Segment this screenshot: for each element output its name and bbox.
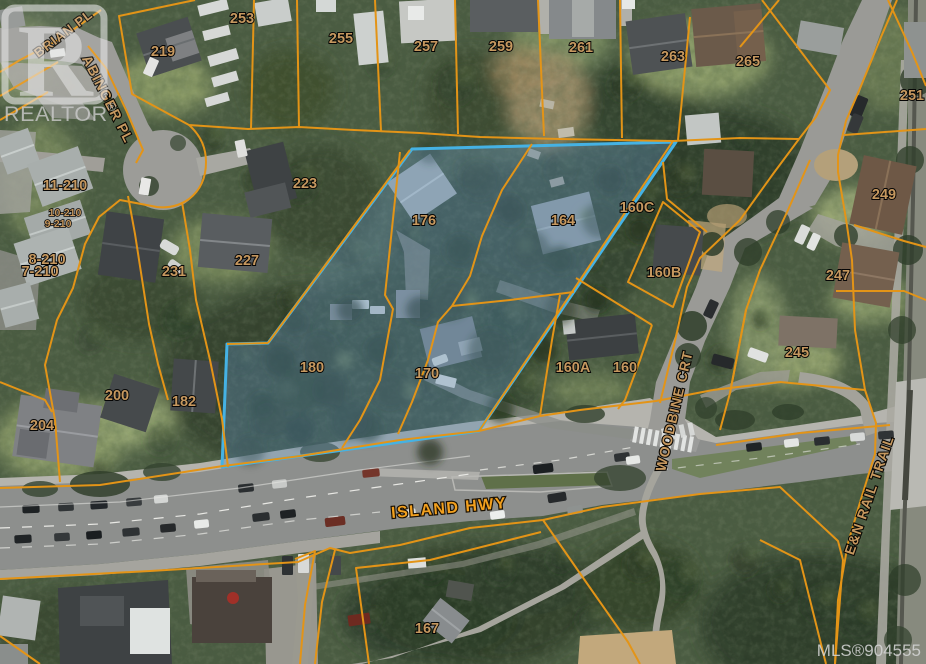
svg-text:176: 176 [412,213,436,229]
svg-text:REALTOR®: REALTOR® [4,102,116,126]
svg-text:11-210: 11-210 [43,178,87,194]
svg-text:200: 200 [105,388,129,404]
svg-text:7-210: 7-210 [21,264,58,280]
svg-text:180: 180 [300,360,324,376]
svg-text:227: 227 [235,253,259,269]
svg-text:160: 160 [613,360,637,376]
svg-text:255: 255 [329,31,353,47]
svg-text:257: 257 [414,39,438,55]
svg-text:204: 204 [30,418,54,434]
svg-text:247: 247 [826,268,850,284]
svg-text:223: 223 [293,176,317,192]
svg-text:253: 253 [230,11,254,27]
svg-text:265: 265 [736,54,760,70]
svg-text:231: 231 [162,264,186,280]
svg-text:261: 261 [569,40,593,56]
svg-text:MLS®904555: MLS®904555 [817,641,921,660]
svg-text:249: 249 [872,187,896,203]
svg-text:160C: 160C [620,200,655,216]
svg-text:9-210: 9-210 [45,218,72,230]
svg-text:167: 167 [415,621,439,637]
svg-text:164: 164 [551,213,575,229]
svg-text:251: 251 [900,88,924,104]
svg-text:263: 263 [661,49,685,65]
svg-text:182: 182 [172,394,196,410]
svg-text:160B: 160B [647,265,682,281]
svg-text:245: 245 [785,345,809,361]
svg-text:259: 259 [489,39,513,55]
svg-text:170: 170 [415,366,439,382]
svg-text:160A: 160A [556,360,591,376]
svg-text:219: 219 [151,44,175,60]
